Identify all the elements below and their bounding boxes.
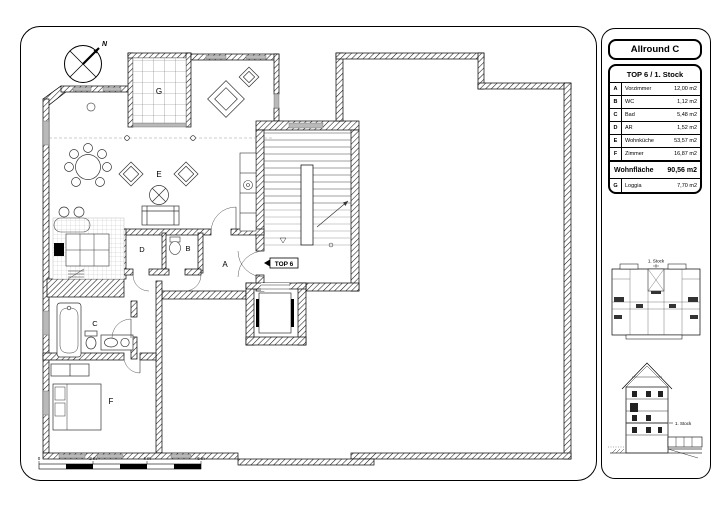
door-arc-f (124, 357, 140, 373)
armchair-right (174, 162, 198, 186)
pillow-1 (55, 387, 65, 400)
kitchen-island (54, 218, 90, 232)
key-plan-drawing: 1. Stock (606, 257, 706, 353)
row-area: 1,12 m2 (677, 99, 700, 105)
wall-neighbour-left (336, 53, 343, 121)
window-left-3 (43, 391, 49, 415)
stair-arrow-icon (343, 201, 348, 206)
room-b: B (170, 237, 202, 291)
wall-neighbour-top1 (336, 53, 484, 59)
building-section-drawing: 1. Stock (606, 357, 708, 475)
row-name: Bad (622, 112, 677, 118)
post-1 (125, 136, 130, 141)
row-key: G (610, 179, 622, 192)
plan-frame: G (20, 26, 597, 481)
window-sitting-right (274, 94, 279, 108)
structure-line (49, 136, 274, 141)
toilet-c-bowl (86, 337, 96, 349)
wall-below-d1 (124, 269, 133, 275)
table-header: TOP 6 / 1. Stock (610, 66, 700, 83)
row-name: Wohnküche (622, 138, 674, 144)
room-loggia: G (133, 58, 186, 123)
scale-tick-3: 6 m (197, 456, 205, 461)
drawing-sheet: G (0, 0, 725, 512)
stairwell (264, 133, 351, 247)
window-f-2 (97, 455, 123, 459)
wall-lift-left (246, 283, 254, 345)
room-label-g: G (156, 87, 162, 96)
room-bad: C (57, 303, 133, 357)
window-f-3 (171, 455, 191, 459)
unit-tag: TOP 6 (264, 258, 298, 268)
window-sitting-1 (206, 56, 226, 60)
post-2 (191, 136, 196, 141)
north-label: N (102, 41, 108, 48)
wall-d-b-divider (162, 233, 166, 273)
building-section: 1. Stock (606, 357, 708, 475)
table-row-loggia: G Loggia 7,70 m2 (610, 179, 700, 192)
pillow-2 (55, 403, 65, 416)
wall-landing-bottom (306, 283, 359, 291)
wall-b-a-divider (198, 233, 203, 273)
row-area: 7,70 m2 (677, 183, 700, 189)
room-label-b: B (185, 244, 190, 253)
wall-below-d2 (149, 269, 169, 275)
row-key: B (610, 96, 622, 108)
unit-tag-arrow-icon (264, 260, 270, 267)
toilet-bowl (170, 242, 181, 255)
total-area: 90,56 m2 (667, 167, 700, 174)
chair-glyph (87, 103, 95, 111)
wall-neighbour-bottom (351, 453, 571, 459)
row-name: AR (622, 125, 677, 131)
elevator-rail-left (256, 299, 259, 327)
window-top-1 (73, 88, 91, 92)
total-label: Wohnfläche (610, 167, 667, 174)
row-name: Loggia (622, 183, 677, 189)
wall-kitchen-bath (47, 279, 124, 297)
table-row: A Vorzimmer 12,00 m2 (610, 83, 700, 96)
room-label-d: D (139, 245, 145, 254)
row-name: Zimmer (622, 151, 674, 157)
room-table: TOP 6 / 1. Stock A Vorzimmer 12,00 m2 B … (608, 64, 702, 194)
wall-loggia-top (128, 53, 191, 58)
door-arc-d (133, 275, 149, 291)
window-f-1 (59, 455, 85, 459)
dining-table (76, 155, 101, 180)
stool-2 (74, 207, 84, 217)
stair-start-marker (280, 238, 286, 243)
row-key: D (610, 122, 622, 134)
project-title: Allround C (631, 44, 680, 55)
scale-tick-2: 4 m (143, 456, 151, 461)
key-plan: 1. Stock (606, 257, 706, 353)
window-stair (289, 123, 323, 128)
wall-bath-right-upper (131, 301, 137, 317)
window-sitting-2 (246, 56, 266, 60)
elevator-cab (259, 293, 291, 333)
sitting-corner (208, 67, 259, 117)
table-total-row: Wohnfläche 90,56 m2 (610, 161, 700, 179)
wall-lift-bottom (246, 337, 306, 345)
table-row: F Zimmer 16,87 m2 (610, 148, 700, 161)
scale-tick-1: 2 m (89, 456, 97, 461)
row-area: 53,57 m2 (674, 138, 700, 144)
floor-plan-drawing: G (21, 27, 595, 479)
toilet-c-tank (85, 331, 97, 336)
room-label-a: A (222, 260, 228, 269)
entry-door-arc-2 (238, 251, 264, 277)
bathtub-inner (60, 308, 78, 353)
stair-newel (301, 165, 313, 245)
window-top-2 (103, 88, 121, 92)
wall-loggia-left (128, 53, 133, 127)
table-row: E Wohnküche 53,57 m2 (610, 135, 700, 148)
row-area: 1,52 m2 (677, 125, 700, 131)
row-area: 12,00 m2 (674, 86, 700, 92)
sink-basin-2 (121, 338, 129, 346)
sink-basin-1 (105, 338, 118, 347)
section-label: 1. Stock (675, 421, 692, 426)
legend-panel: Allround C TOP 6 / 1. Stock A Vorzimmer … (601, 28, 711, 479)
room-d: D (133, 245, 149, 291)
key-plan-label: 1. Stock (648, 259, 665, 264)
wall-stair-right (351, 130, 359, 291)
kitchen-appliance (54, 243, 64, 256)
row-key: A (610, 83, 622, 95)
window-loggia-band (133, 123, 186, 127)
wall-bottom-step (238, 459, 374, 465)
table-row: D AR 1,52 m2 (610, 122, 700, 135)
wall-sitting-right-upper (274, 54, 279, 94)
room-label-c: C (92, 319, 98, 328)
sofa (142, 206, 179, 225)
elevator (256, 283, 294, 333)
row-name: WC (622, 99, 677, 105)
room-zimmer: F (51, 357, 140, 430)
door-arc-e-a (211, 207, 236, 232)
wall-below-b (185, 269, 201, 275)
room-label-e: E (156, 170, 161, 179)
wall-a-bottom (162, 291, 246, 299)
stair-up-line (317, 201, 348, 227)
elevator-rail-right (291, 299, 294, 327)
window-left-2 (43, 311, 49, 335)
wall-neighbour-right (564, 83, 571, 459)
wall-bath-f-stub (140, 353, 156, 360)
row-area: 16,87 m2 (674, 151, 700, 157)
project-title-box: Allround C (608, 39, 702, 60)
row-area: 5,48 m2 (677, 112, 700, 118)
bathtub-faucet (67, 306, 71, 310)
row-key: C (610, 109, 622, 121)
row-key: E (610, 135, 622, 147)
unit-tag-label: TOP 6 (275, 261, 294, 268)
entry-door-arc-1 (238, 251, 264, 277)
table-row: B WC 1,12 m2 (610, 96, 700, 109)
wall-neighbour-top2 (478, 83, 571, 89)
kitchen-line (240, 153, 256, 231)
door-arc-b (185, 275, 201, 291)
wall-corridor-right (156, 281, 162, 453)
armchair-left (119, 162, 143, 186)
window-left-1 (43, 121, 49, 145)
wall-loggia-right (186, 53, 191, 127)
north-arrow: N (65, 41, 109, 83)
wall-sitting-right-lower (274, 108, 279, 121)
room-label-f: F (109, 397, 114, 406)
row-key: F (610, 148, 622, 160)
row-name: Vorzimmer (622, 86, 674, 92)
table-row: C Bad 5,48 m2 (610, 109, 700, 122)
scale-tick-0: 0 (38, 456, 41, 461)
wall-lift-right (298, 283, 306, 345)
stool-1 (59, 207, 69, 217)
wall-bath-f (43, 353, 124, 360)
